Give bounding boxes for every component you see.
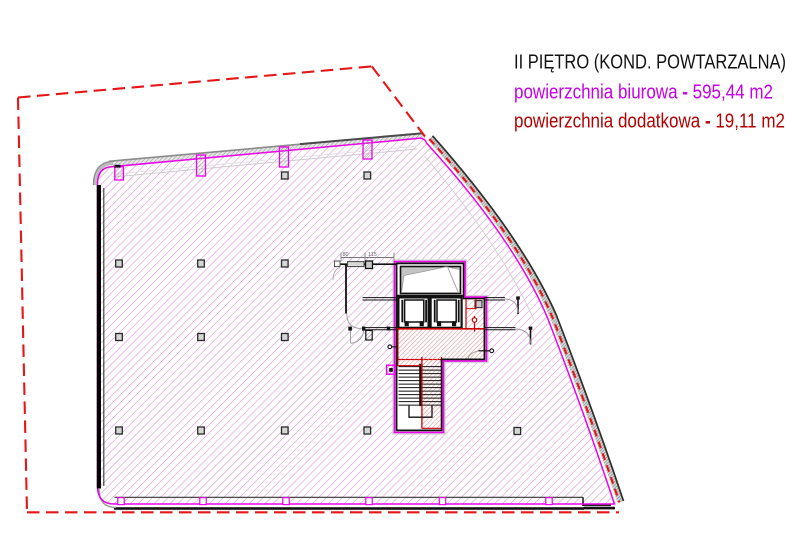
svg-text:115: 115 [368,252,377,258]
svg-text:powierzchnia biurowa - 595,44: powierzchnia biurowa - 595,44 m2 [514,80,773,103]
svg-text:powierzchnia dodatkowa - 19,11: powierzchnia dodatkowa - 19,11 m2 [514,109,785,132]
svg-text:80: 80 [343,252,349,258]
svg-text:II PIĘTRO (KOND. POWTARZALNA): II PIĘTRO (KOND. POWTARZALNA) [514,51,786,74]
